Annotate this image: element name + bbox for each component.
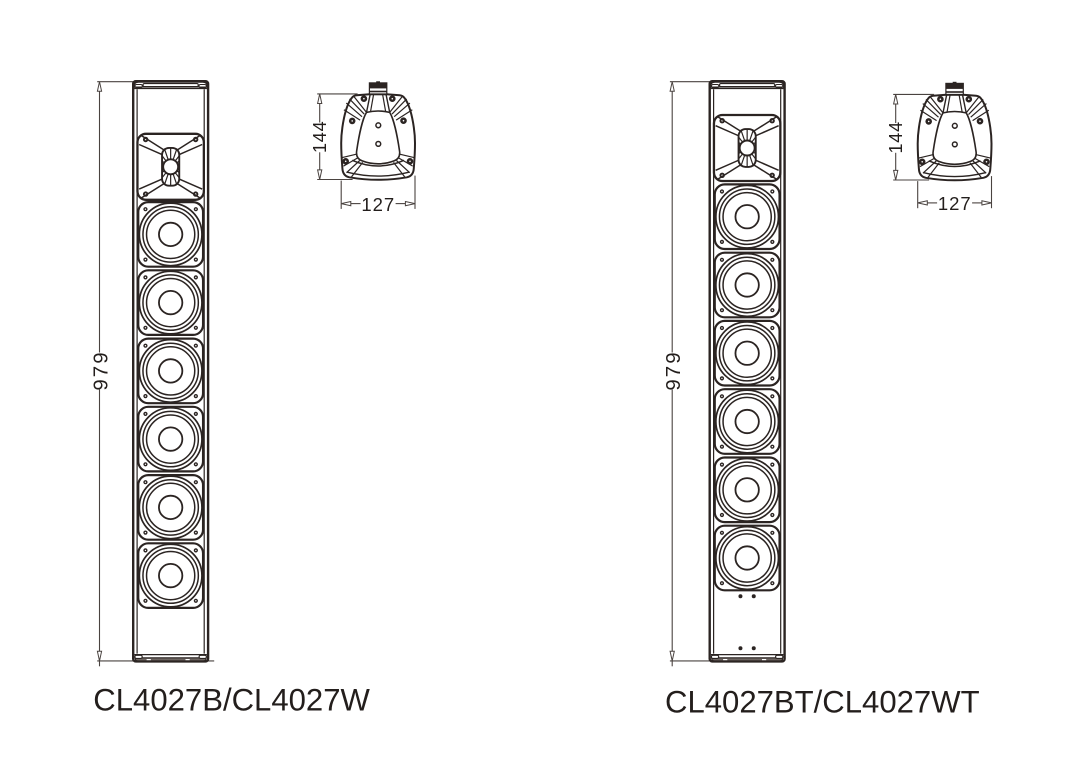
svg-text:127: 127 xyxy=(361,194,395,215)
svg-text:144: 144 xyxy=(886,121,906,153)
svg-text:127: 127 xyxy=(938,193,972,214)
svg-text:979: 979 xyxy=(662,350,685,390)
svg-text:CL4027BT/CL4027WT: CL4027BT/CL4027WT xyxy=(665,685,980,720)
svg-text:979: 979 xyxy=(89,350,112,390)
svg-text:CL4027B/CL4027W: CL4027B/CL4027W xyxy=(93,683,370,718)
svg-text:144: 144 xyxy=(310,121,330,153)
